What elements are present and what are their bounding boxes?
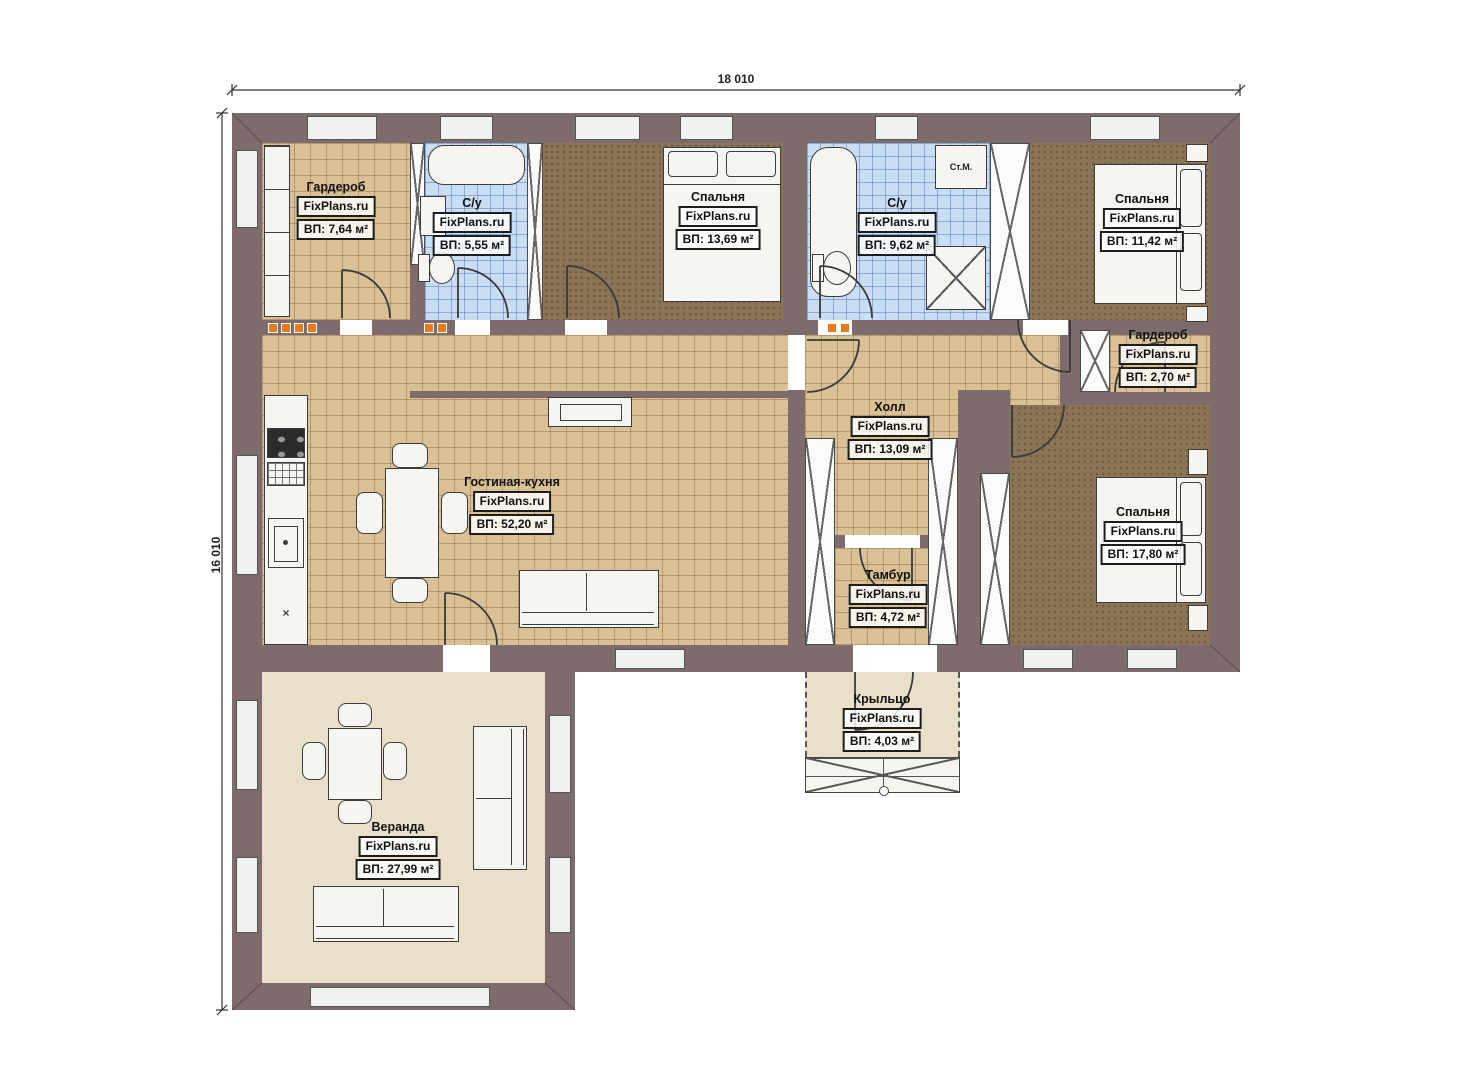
wall: [607, 320, 818, 335]
chair: [392, 578, 428, 603]
room-area: ВП: 11,42 м²: [1100, 231, 1184, 252]
window: [307, 116, 377, 140]
room-label-wardrobe-1: Гардероб FixPlans.ru ВП: 7,64 м²: [297, 180, 376, 240]
chair: [338, 703, 372, 727]
window: [615, 649, 685, 669]
heating-mark: [281, 323, 291, 333]
kitchen-x-mark: ×: [268, 606, 304, 620]
chair: [383, 742, 407, 780]
pillow: [726, 151, 776, 177]
room-name: Спальня: [1100, 192, 1184, 206]
room-label-bedroom-1: Спальня FixPlans.ru ВП: 13,69 м²: [676, 190, 761, 250]
nightstand: [1188, 449, 1208, 475]
watermark: FixPlans.ru: [851, 416, 930, 437]
room-area: ВП: 13,69 м²: [676, 229, 761, 250]
room-label-porch: Крыльцо FixPlans.ru ВП: 4,03 м²: [843, 692, 922, 752]
watermark: FixPlans.ru: [473, 491, 552, 512]
dimension-tick: [217, 1005, 227, 1015]
bathtub: [428, 145, 525, 185]
dimension-tick: [227, 85, 237, 95]
door-opening: [1023, 320, 1068, 335]
room-name: Крыльцо: [843, 692, 922, 706]
sofa: [313, 886, 459, 942]
window: [875, 116, 918, 140]
window: [236, 700, 258, 790]
room-label-bedroom-2: Спальня FixPlans.ru ВП: 11,42 м²: [1100, 192, 1184, 252]
watermark: FixPlans.ru: [679, 206, 758, 227]
room-name: Спальня: [676, 190, 761, 204]
sofa: [519, 570, 659, 628]
hatched-wall: [990, 143, 1030, 320]
heating-mark: [827, 323, 837, 333]
window: [236, 150, 258, 228]
room-name: Холл: [848, 400, 933, 414]
room-name: Гардероб: [297, 180, 376, 194]
watermark: FixPlans.ru: [433, 212, 512, 233]
room-area: ВП: 4,72 м²: [849, 607, 927, 628]
wall: [852, 320, 1023, 335]
stove: [267, 428, 305, 458]
kitchen-sink: [268, 518, 304, 568]
window: [440, 116, 493, 140]
door-opening: [455, 320, 490, 335]
room-label-bathroom-1: С/у FixPlans.ru ВП: 5,55 м²: [433, 196, 512, 256]
wall: [1060, 335, 1080, 392]
wall: [980, 390, 1010, 473]
door-opening: [845, 535, 920, 548]
pillow: [668, 151, 718, 177]
room-label-veranda: Веранда FixPlans.ru ВП: 27,99 м²: [356, 820, 441, 880]
entrance-door-opening: [853, 645, 937, 672]
watermark: FixPlans.ru: [858, 212, 937, 233]
door-opening: [443, 645, 490, 672]
room-label-hall: Холл FixPlans.ru ВП: 13,09 м²: [848, 400, 933, 460]
watermark: FixPlans.ru: [1119, 344, 1198, 365]
toilet-bowl: [429, 252, 455, 284]
room-name: Гардероб: [1119, 328, 1198, 342]
room-name: Спальня: [1101, 505, 1186, 519]
floor-plan: Ст.М. ×: [0, 0, 1473, 1080]
heating-mark: [307, 323, 317, 333]
room-area: ВП: 27,99 м²: [356, 859, 441, 880]
wall: [490, 320, 565, 335]
room-name: Тамбур: [849, 568, 928, 582]
window: [236, 857, 258, 933]
heating-mark: [424, 323, 434, 333]
room-area: ВП: 9,62 м²: [858, 235, 936, 256]
wall: [1060, 392, 1210, 405]
room-area: ВП: 2,70 м²: [1119, 367, 1197, 388]
window: [1127, 649, 1177, 669]
hatched-wall: [1080, 330, 1110, 392]
window: [310, 987, 490, 1007]
window: [680, 116, 733, 140]
hatched-wall: [928, 438, 958, 645]
watermark: FixPlans.ru: [843, 708, 922, 729]
room-name: Веранда: [356, 820, 441, 834]
room-label-tambour: Тамбур FixPlans.ru ВП: 4,72 м²: [849, 568, 928, 628]
nightstand: [1186, 306, 1208, 322]
heating-mark: [294, 323, 304, 333]
dimension-tick: [217, 108, 227, 118]
dining-table: [385, 468, 439, 578]
heating-mark: [437, 323, 447, 333]
window: [549, 857, 571, 933]
dining-table: [328, 728, 382, 800]
dimension-height-label: 16 010: [209, 525, 223, 585]
door-opening: [788, 338, 805, 390]
watermark: FixPlans.ru: [1103, 208, 1182, 229]
sofa: [473, 726, 527, 870]
room-label-wardrobe-2: Гардероб FixPlans.ru ВП: 2,70 м²: [1119, 328, 1198, 388]
wall: [937, 645, 1240, 672]
wall: [232, 113, 1240, 143]
dimension-tick: [1235, 85, 1245, 95]
dimension-width-label: 18 010: [700, 72, 772, 86]
room-hall-floor: [1010, 335, 1060, 405]
wall: [788, 388, 805, 645]
porch-steps: [805, 757, 960, 793]
window: [236, 455, 258, 575]
wall: [262, 645, 443, 672]
room-area: ВП: 52,20 м²: [470, 514, 555, 535]
nightstand: [1186, 144, 1208, 162]
window: [549, 715, 571, 793]
room-name: С/у: [858, 196, 937, 210]
heating-mark: [268, 323, 278, 333]
wall: [783, 143, 807, 320]
room-label-living: Гостиная-кухня FixPlans.ru ВП: 52,20 м²: [464, 475, 560, 535]
shelving: [264, 145, 290, 317]
door-opening: [340, 320, 372, 335]
window: [575, 116, 640, 140]
door-opening: [565, 320, 607, 335]
hatched-wall: [805, 438, 835, 645]
hatched-wall: [527, 143, 543, 320]
room-area: ВП: 17,80 м²: [1101, 544, 1186, 565]
chair: [392, 443, 428, 468]
watermark: FixPlans.ru: [297, 196, 376, 217]
hatched-wall: [980, 473, 1010, 645]
chair: [302, 742, 326, 780]
room-name: С/у: [433, 196, 512, 210]
window: [1090, 116, 1160, 140]
room-name: Гостиная-кухня: [464, 475, 560, 489]
room-label-bathroom-2: С/у FixPlans.ru ВП: 9,62 м²: [858, 196, 937, 256]
tv-stand: [548, 397, 632, 427]
wall: [1210, 113, 1240, 672]
room-area: ВП: 13,09 м²: [848, 439, 933, 460]
room-area: ВП: 4,03 м²: [843, 731, 921, 752]
room-label-bedroom-3: Спальня FixPlans.ru ВП: 17,80 м²: [1101, 505, 1186, 565]
heating-mark: [840, 323, 850, 333]
toilet-bowl: [823, 251, 851, 285]
watermark: FixPlans.ru: [1104, 521, 1183, 542]
watermark: FixPlans.ru: [359, 836, 438, 857]
window: [1023, 649, 1073, 669]
washing-machine-label: Ст.М.: [935, 145, 987, 189]
chair: [356, 492, 383, 534]
room-area: ВП: 7,64 м²: [297, 219, 375, 240]
watermark: FixPlans.ru: [849, 584, 928, 605]
nightstand: [1188, 605, 1208, 631]
oven: [267, 462, 305, 486]
wall: [958, 390, 980, 645]
room-area: ВП: 5,55 м²: [433, 235, 511, 256]
wall: [490, 645, 575, 672]
